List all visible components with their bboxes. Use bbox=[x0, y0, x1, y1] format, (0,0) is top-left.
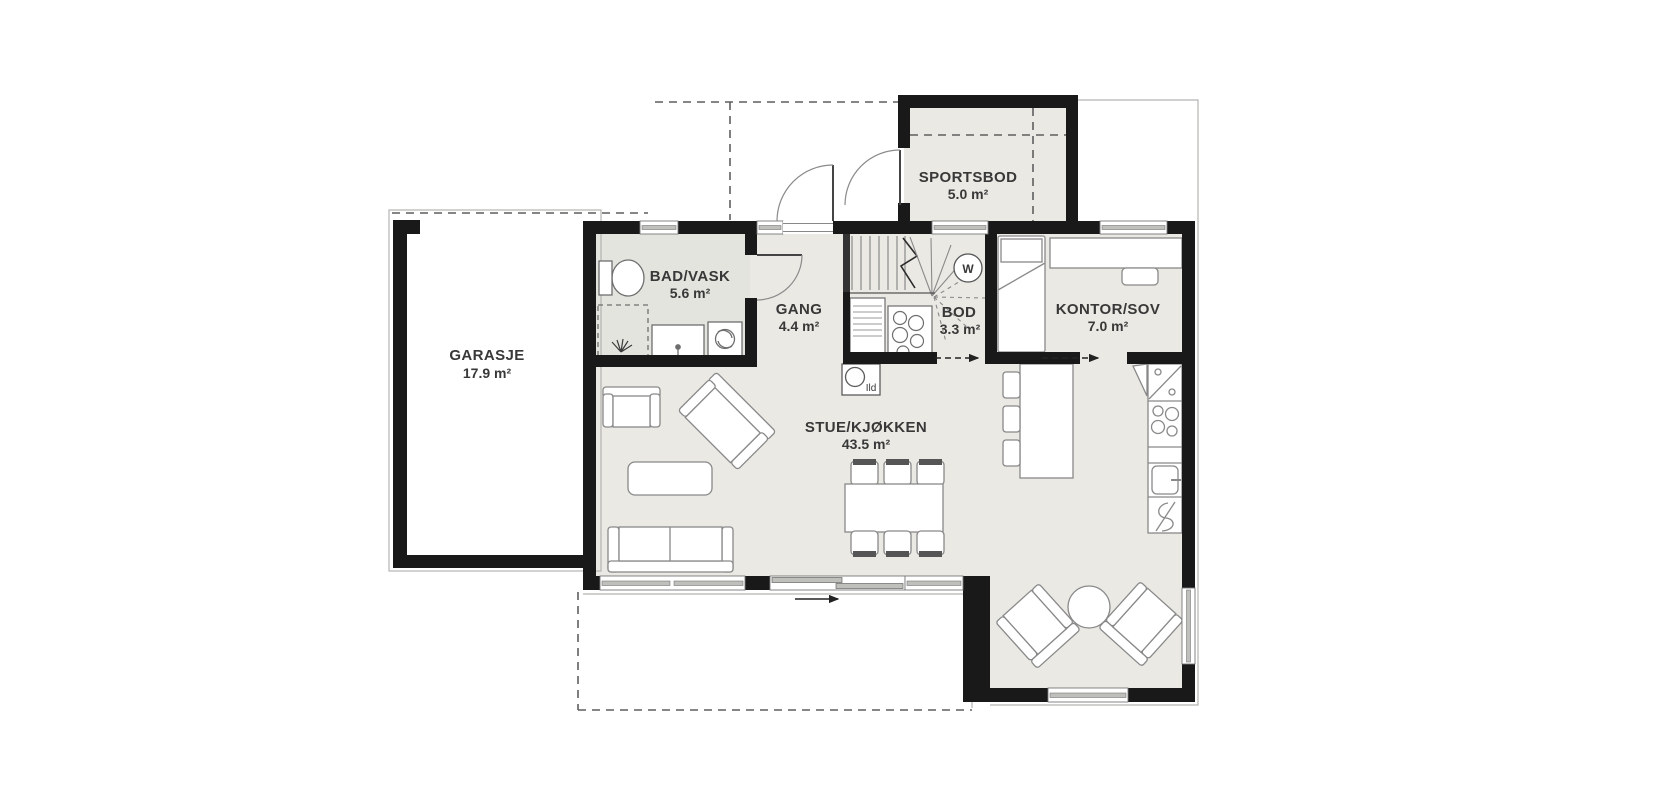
sportsbod-door-swing bbox=[845, 150, 900, 205]
right-wall bbox=[1182, 664, 1195, 702]
bar-stool bbox=[1003, 372, 1020, 398]
window bbox=[932, 221, 988, 234]
fireplace-flue bbox=[846, 368, 865, 387]
dining-chair bbox=[917, 459, 944, 485]
bottom-wall-pier bbox=[745, 576, 770, 590]
bath-sink-tap bbox=[676, 345, 680, 349]
cooktop-burner bbox=[1167, 426, 1177, 436]
top-wall bbox=[678, 221, 757, 234]
fridge-dot bbox=[1155, 369, 1161, 375]
dining-chair bbox=[884, 531, 911, 557]
right-wall bbox=[1182, 221, 1195, 588]
kontor-bottom-wall bbox=[1127, 352, 1195, 364]
nook-bottom-wall bbox=[990, 688, 1048, 702]
bar-stool bbox=[1003, 440, 1020, 466]
room-area-bod: 3.3 m² bbox=[940, 321, 981, 337]
fridge-dot bbox=[1169, 389, 1175, 395]
room-label-stue-kjokken: STUE/KJØKKEN bbox=[805, 419, 927, 436]
hob-burner bbox=[894, 312, 907, 325]
dining-chair bbox=[851, 531, 878, 557]
dining-chair bbox=[917, 531, 944, 557]
entry-opening bbox=[783, 221, 833, 234]
window bbox=[600, 576, 745, 590]
room-label-sportsbod: SPORTSBOD bbox=[919, 169, 1018, 186]
window bbox=[640, 221, 678, 234]
bath-right-wall bbox=[745, 234, 757, 255]
cooktop-burner bbox=[1152, 421, 1165, 434]
room-area-sportsbod: 5.0 m² bbox=[948, 186, 989, 202]
left-wall bbox=[583, 221, 596, 578]
room-label-garasje: GARASJE bbox=[449, 347, 524, 364]
sportsbod-top-wall bbox=[898, 95, 1078, 108]
dining-table bbox=[845, 484, 943, 532]
garage-top-stub bbox=[393, 220, 420, 234]
sportsbod-left-wall bbox=[898, 203, 910, 223]
room-area-garasje: 17.9 m² bbox=[463, 365, 512, 381]
dining-chair bbox=[851, 459, 878, 485]
room-area-bad-vask: 5.6 m² bbox=[670, 285, 711, 301]
tall-cabinet bbox=[850, 298, 885, 360]
cooktop-burner bbox=[1166, 408, 1179, 421]
hob-burner bbox=[893, 328, 908, 343]
room-area-kontor-sov: 7.0 m² bbox=[1088, 318, 1129, 334]
kitchen-island bbox=[1020, 364, 1073, 478]
nook-step-wall bbox=[963, 576, 990, 702]
armchair bbox=[603, 387, 660, 427]
top-wall bbox=[988, 221, 1100, 234]
window bbox=[757, 221, 783, 234]
toilet-bowl bbox=[612, 260, 644, 296]
desk-chair bbox=[1122, 268, 1158, 285]
kitchen-back-wall bbox=[843, 352, 937, 364]
hob-burner bbox=[911, 335, 924, 348]
bath-bottom-wall bbox=[583, 355, 757, 367]
room-area-gang: 4.4 m² bbox=[779, 318, 820, 334]
window bbox=[905, 576, 963, 590]
sportsbod-right-wall bbox=[1066, 95, 1078, 223]
room-label-kontor-sov: KONTOR/SOV bbox=[1056, 301, 1161, 318]
hob-burner bbox=[909, 316, 924, 331]
understair-wall bbox=[843, 292, 850, 356]
fireplace-label: Ild bbox=[866, 383, 877, 394]
stair-left-wall bbox=[843, 234, 850, 293]
coffee-table bbox=[628, 462, 712, 495]
room-label-bad-vask: BAD/VASK bbox=[650, 268, 730, 285]
kontor-left-wall bbox=[985, 234, 997, 364]
garage-outer-outline bbox=[389, 210, 601, 571]
water-heater-label: W bbox=[962, 262, 974, 276]
top-wall bbox=[833, 221, 905, 234]
toilet-tank bbox=[599, 261, 612, 295]
kitchen-counter bbox=[1148, 364, 1182, 533]
room-area-stue-kjokken: 43.5 m² bbox=[842, 436, 891, 452]
dining-chair bbox=[884, 459, 911, 485]
window bbox=[1100, 221, 1167, 234]
window bbox=[1048, 688, 1128, 702]
fireplace: Ild bbox=[842, 364, 880, 395]
sportsbod-left-wall bbox=[898, 95, 910, 148]
sportsbod-floor bbox=[904, 102, 1072, 226]
garage-left-wall bbox=[393, 220, 407, 568]
dining-set bbox=[845, 459, 944, 557]
room-label-gang: GANG bbox=[776, 301, 823, 318]
bath-right-wall bbox=[745, 298, 757, 357]
bed-pillow bbox=[1001, 239, 1042, 262]
bar-stool bbox=[1003, 406, 1020, 432]
garage-bottom-wall bbox=[393, 555, 583, 568]
room-label-bod: BOD bbox=[942, 304, 977, 321]
bottom-wall-corner bbox=[583, 576, 600, 590]
entry-door-swing bbox=[777, 165, 833, 221]
cooktop-burner bbox=[1153, 406, 1163, 416]
sliding-door bbox=[770, 576, 905, 599]
window bbox=[1182, 588, 1195, 664]
floor-plan-canvas: W bbox=[0, 0, 1670, 800]
sofa bbox=[608, 527, 733, 572]
desk bbox=[1050, 238, 1182, 268]
